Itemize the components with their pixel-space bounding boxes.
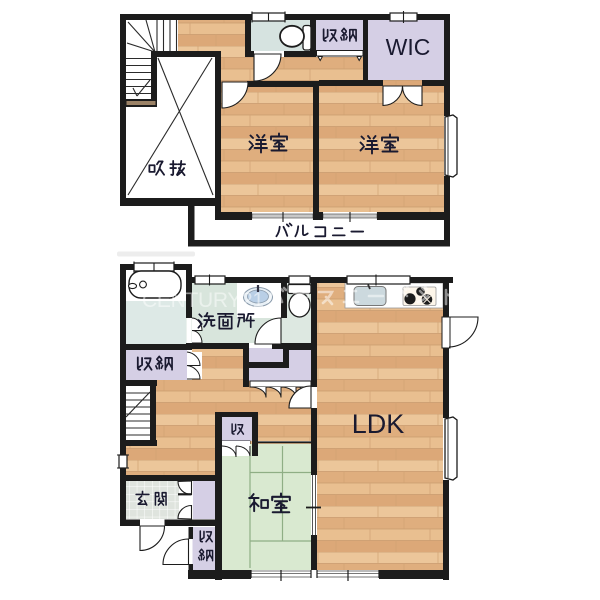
svg-text:WIC: WIC (386, 34, 431, 60)
svg-text:LDK: LDK (352, 409, 405, 439)
svg-text:CENTURY21: CENTURY21 (142, 289, 264, 312)
